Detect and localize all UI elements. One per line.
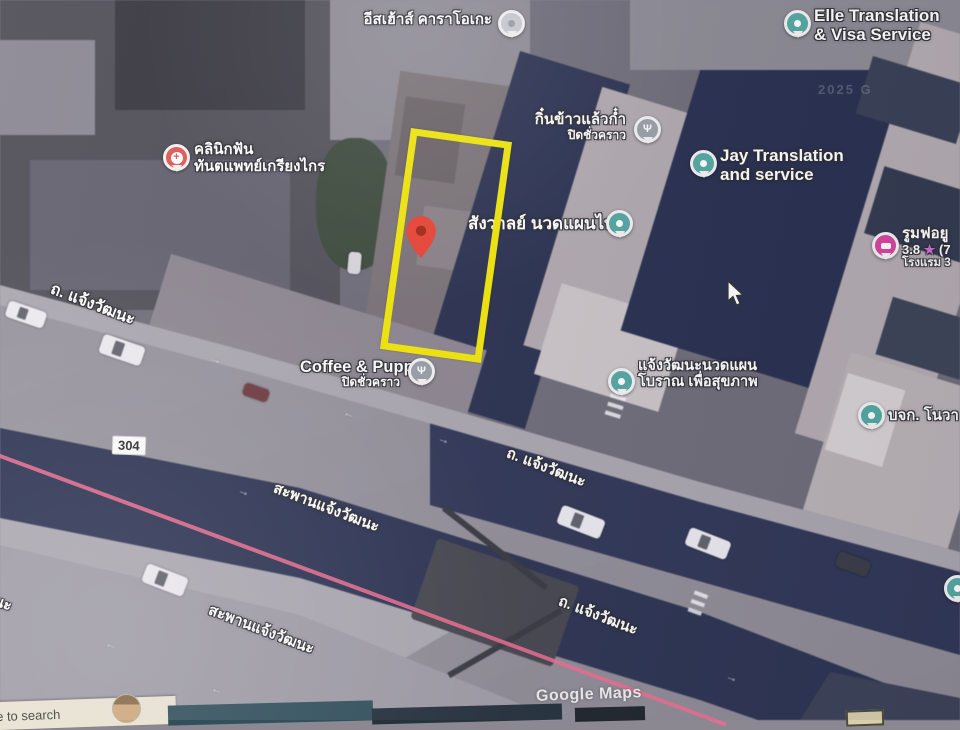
fork-knife-icon: Ψ bbox=[643, 124, 652, 135]
pin-dot-icon bbox=[794, 20, 801, 27]
place-label-elle-translation[interactable]: Elle Translation& Visa Service bbox=[814, 6, 940, 44]
bottom-right-partial-ui bbox=[846, 709, 885, 726]
pin-dot-icon bbox=[616, 220, 623, 227]
taskbar-search-box[interactable]: e to search bbox=[0, 696, 176, 730]
nova-company-pin[interactable] bbox=[858, 402, 885, 429]
hotel-review-count: (7 bbox=[939, 242, 951, 257]
place-label-coffee-puppy[interactable]: Coffee & Puppyปิดชั่วคราว bbox=[300, 358, 400, 390]
dental-clinic-pin[interactable]: + bbox=[163, 144, 190, 171]
place-label-traditional-massage[interactable]: แจ้งวัฒนะนวดแผนโบราณ เพื่อสุขภาพ bbox=[638, 358, 758, 390]
fork-knife-icon: Ψ bbox=[417, 366, 426, 377]
elle-translation-pin[interactable] bbox=[784, 10, 811, 37]
place-label-hotel[interactable]: รูมฟอยู 3.8 ★ (7 โรงแรม 3 bbox=[902, 226, 951, 270]
traditional-massage-pin[interactable] bbox=[608, 368, 635, 395]
taskbar-news-avatar[interactable] bbox=[112, 694, 141, 723]
karaoke-pin[interactable] bbox=[498, 10, 525, 37]
pin-dot-icon bbox=[508, 20, 515, 27]
pin-dot-icon bbox=[954, 585, 960, 592]
place-label-nova-company[interactable]: บจก. โนวา bbox=[888, 408, 959, 425]
pin-dot-icon bbox=[618, 378, 625, 385]
jay-translation-pin[interactable] bbox=[690, 150, 717, 177]
cross-icon: + bbox=[171, 152, 183, 164]
star-icon: ★ bbox=[924, 242, 936, 257]
hotel-pin[interactable] bbox=[872, 232, 899, 259]
place-label-dental-clinic[interactable]: คลินิกฟันทันตแพทย์เกรียงไกร bbox=[194, 142, 325, 176]
pin-dot-icon bbox=[868, 412, 875, 419]
place-label-karaoke[interactable]: อีสเฮ้าส์ คาราโอเกะ bbox=[342, 12, 492, 29]
google-maps-watermark: Google Maps bbox=[536, 684, 643, 706]
pin-dot-icon bbox=[700, 160, 707, 167]
taskbar-search-text: e to search bbox=[0, 706, 61, 723]
taskbar-strip-teal[interactable] bbox=[168, 700, 373, 725]
place-label-kin-khao[interactable]: กิ๋นข้าวแล้วก๋ำปิดชั่วคราว bbox=[508, 112, 626, 142]
car bbox=[347, 251, 362, 274]
route-304-badge: 304 bbox=[112, 435, 146, 455]
place-label-jay-translation[interactable]: Jay Translationand service bbox=[720, 146, 844, 184]
bed-icon bbox=[881, 243, 891, 249]
restaurant-pin[interactable]: Ψ bbox=[634, 116, 661, 143]
sangwan-massage-pin[interactable] bbox=[606, 210, 633, 237]
hotel-rating: 3.8 bbox=[902, 242, 920, 257]
copyright-watermark: 2025 G bbox=[818, 82, 873, 97]
mouse-cursor bbox=[726, 280, 746, 308]
coffee-puppy-pin[interactable]: Ψ bbox=[408, 358, 435, 385]
red-location-marker[interactable] bbox=[406, 216, 436, 258]
